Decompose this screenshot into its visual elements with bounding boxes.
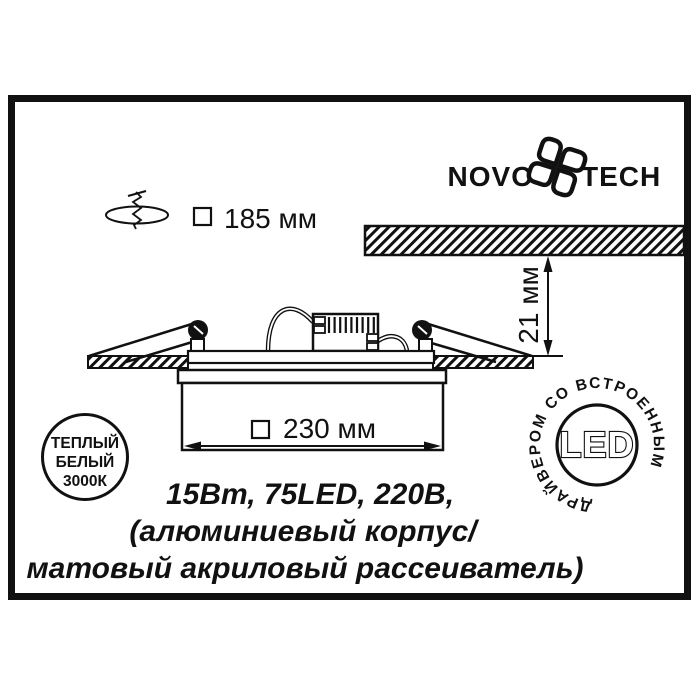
novotech-wordmark-left: NOVO: [448, 161, 534, 192]
novotech-flower-icon: [526, 136, 588, 198]
trim-ring: [178, 370, 446, 383]
led-badge-center-text: LED: [560, 424, 635, 465]
warm-white-line2: БЕЛЫЙ: [56, 453, 115, 471]
spec-line-2: (алюминиевый корпус/: [129, 515, 479, 548]
spec-text-block: 15Вт, 75LED, 220В, (алюминиевый корпус/ …: [26, 478, 583, 585]
square-shape-symbol: [252, 421, 269, 438]
mounting-hole-ellipse: [106, 207, 168, 224]
ceiling-section-upper: [365, 226, 684, 255]
novotech-wordmark-right: TECH: [581, 161, 661, 192]
square-shape-symbol: [194, 208, 211, 225]
cutout-hole-icon: [106, 191, 168, 229]
spec-line-3: матовый акриловый рассеиватель): [26, 552, 583, 585]
cutout-size-text: 185 мм: [224, 203, 317, 234]
warm-white-line3: 3000К: [63, 473, 107, 490]
diagram-canvas: NOVO TECH: [0, 0, 700, 700]
depth-dimension-text: 21 мм: [513, 266, 544, 343]
novotech-logo: NOVO TECH: [448, 136, 662, 198]
mounting-plate: [188, 351, 434, 363]
warm-white-line1: ТЕПЛЫЙ: [51, 434, 119, 452]
depth-dimension: 21 мм: [513, 256, 563, 356]
led-driver-badge: LED ДРАЙВЕРОМ СО ВСТРОЕННЫМ: [527, 375, 667, 515]
arrow-down-icon: [544, 340, 553, 356]
width-dimension-text: 230 мм: [283, 413, 376, 444]
spec-line-1: 15Вт, 75LED, 220В,: [166, 478, 454, 511]
cutout-size-label: 185 мм: [194, 203, 317, 234]
warm-white-badge: ТЕПЛЫЙ БЕЛЫЙ 3000К: [43, 415, 128, 500]
arrow-up-icon: [544, 256, 553, 272]
spec-sheet-page: NOVO TECH: [0, 0, 700, 700]
spring-clip-left-arm-upper: [89, 323, 195, 356]
